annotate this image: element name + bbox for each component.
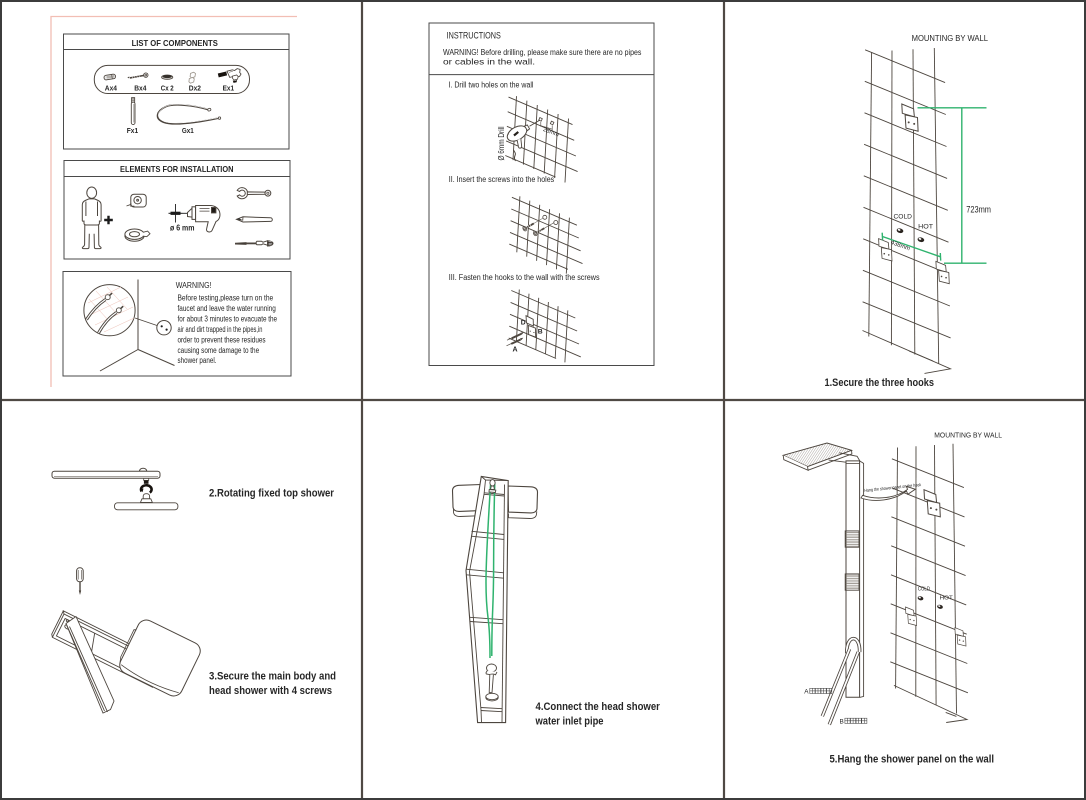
svg-text:Before testing,please turn on: Before testing,please turn on the [178, 294, 274, 303]
svg-text:Cx 2: Cx 2 [161, 85, 174, 92]
svg-text:A: A [513, 347, 518, 354]
svg-text:Ø 6mm Drill: Ø 6mm Drill [497, 126, 506, 160]
svg-text:III. Fasten the hooks to the: III. Fasten the hooks to the wall with t… [449, 273, 600, 282]
svg-text:D: D [521, 319, 526, 326]
svg-text:INSTRUCTIONS: INSTRUCTIONS [447, 31, 501, 41]
svg-text:or cables in the wall.: or cables in the wall. [443, 58, 535, 67]
svg-text:LIST OF COMPONENTS: LIST OF COMPONENTS [132, 38, 219, 48]
svg-text:shower panel.: shower panel. [178, 356, 217, 365]
svg-text:order to prevent these residue: order to prevent these residues [178, 335, 266, 344]
svg-text:5.Hang the shower panel on the: 5.Hang the shower panel on the wall [830, 754, 995, 766]
svg-text:3.Secure the main body and: 3.Secure the main body and [209, 671, 336, 683]
svg-text:HOT: HOT [940, 596, 954, 602]
svg-text:MOUNTING BY WALL: MOUNTING BY WALL [912, 33, 989, 43]
svg-text:for about 3 minutes to evacuat: for about 3 minutes to evacuate the [178, 314, 278, 323]
svg-text:ELEMENTS FOR INSTALLATION: ELEMENTS FOR INSTALLATION [120, 164, 234, 174]
svg-text:air and dirt trapped in the pi: air and dirt trapped in the pipes,in [178, 325, 263, 334]
svg-text:COLD: COLD [918, 587, 930, 593]
svg-text:faucet and leave the water run: faucet and leave the water running [178, 304, 276, 313]
svg-text:B: B [538, 329, 543, 336]
svg-text:water inlet pipe: water inlet pipe [535, 716, 604, 728]
svg-text:COLD: COLD [894, 214, 913, 221]
svg-text:Gx1: Gx1 [182, 128, 194, 135]
svg-text:HOT: HOT [918, 224, 933, 231]
svg-text:causing some damage to the: causing some damage to the [178, 346, 260, 355]
svg-text:Ex1: Ex1 [223, 85, 235, 92]
svg-text:head shower with 4 screws: head shower with 4 screws [209, 685, 332, 697]
svg-text:ø 6 mm: ø 6 mm [170, 223, 195, 233]
svg-text:1.Secure the three hooks: 1.Secure the three hooks [825, 377, 935, 389]
svg-text:I. Drill two holes on the wall: I. Drill two holes on the wall [449, 81, 534, 90]
svg-text:Bx4: Bx4 [134, 85, 146, 92]
svg-text:WARNING! Before drilling, ple: WARNING! Before drilling, please make su… [443, 48, 641, 57]
svg-text:723mm: 723mm [966, 205, 991, 215]
svg-text:2.Rotating fixed top shower: 2.Rotating fixed top shower [209, 488, 334, 500]
svg-text:MOUNTING BY WALL: MOUNTING BY WALL [934, 431, 1002, 440]
svg-text:A: A [804, 689, 809, 696]
svg-text:II. Insert the screws into the: II. Insert the screws into the holes [449, 175, 554, 184]
svg-text:4.Connect the head shower: 4.Connect the head shower [536, 701, 660, 713]
svg-text:B: B [840, 718, 844, 725]
svg-text:WARNING!: WARNING! [176, 281, 212, 290]
svg-text:Dx2: Dx2 [189, 85, 201, 92]
svg-text:Fx1: Fx1 [127, 128, 138, 135]
svg-text:Ax4: Ax4 [105, 85, 117, 92]
